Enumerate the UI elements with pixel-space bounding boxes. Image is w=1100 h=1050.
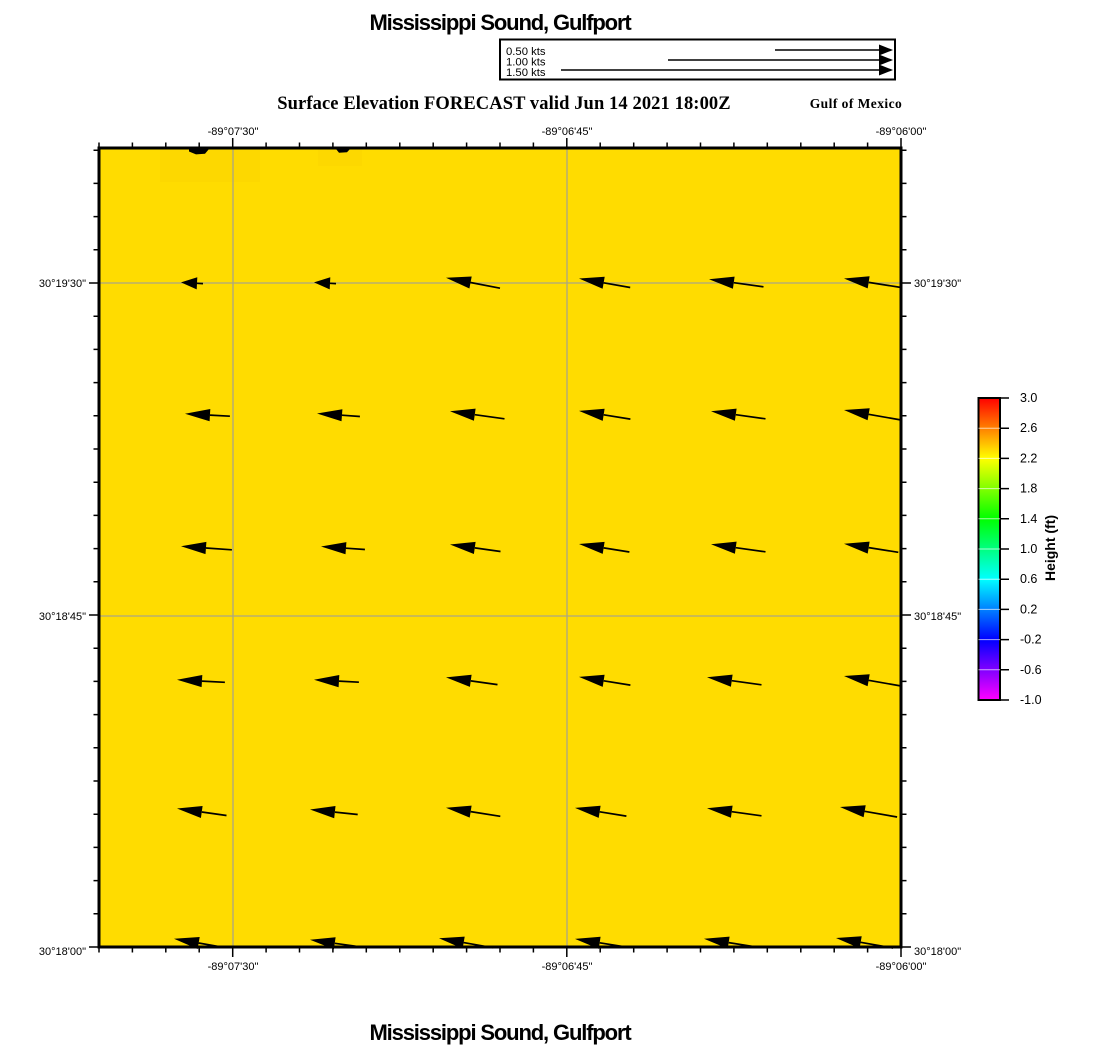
svg-text:-89°06'00": -89°06'00": [876, 126, 927, 138]
svg-text:30°18'45": 30°18'45": [39, 611, 86, 623]
svg-text:30°19'30": 30°19'30": [914, 278, 961, 290]
svg-text:-0.2: -0.2: [1020, 633, 1042, 647]
svg-text:Gulf of Mexico: Gulf of Mexico: [810, 96, 903, 111]
svg-text:-89°07'30": -89°07'30": [208, 961, 259, 973]
svg-text:1.0: 1.0: [1020, 542, 1037, 556]
svg-text:1.50 kts: 1.50 kts: [506, 67, 546, 79]
svg-text:30°18'00": 30°18'00": [39, 946, 86, 958]
svg-text:-89°07'30": -89°07'30": [208, 126, 259, 138]
svg-text:Height (ft): Height (ft): [1042, 515, 1058, 581]
svg-text:1.8: 1.8: [1020, 482, 1037, 496]
svg-text:30°19'30": 30°19'30": [39, 278, 86, 290]
svg-text:-1.0: -1.0: [1020, 693, 1042, 707]
svg-text:-89°06'45": -89°06'45": [542, 126, 593, 138]
svg-text:-0.6: -0.6: [1020, 663, 1042, 677]
svg-text:Mississippi Sound, Gulfport: Mississippi Sound, Gulfport: [369, 1020, 632, 1045]
svg-text:3.0: 3.0: [1020, 391, 1037, 405]
svg-text:2.6: 2.6: [1020, 421, 1037, 435]
svg-text:30°18'00": 30°18'00": [914, 946, 961, 958]
svg-text:0.6: 0.6: [1020, 572, 1037, 586]
svg-text:30°18'45": 30°18'45": [914, 611, 961, 623]
svg-text:1.4: 1.4: [1020, 512, 1037, 526]
svg-text:Surface Elevation FORECAST val: Surface Elevation FORECAST valid Jun 14 …: [277, 94, 730, 114]
svg-text:2.2: 2.2: [1020, 451, 1037, 465]
svg-text:Mississippi Sound, Gulfport: Mississippi Sound, Gulfport: [369, 10, 632, 35]
svg-text:-89°06'00": -89°06'00": [876, 961, 927, 973]
svg-text:0.2: 0.2: [1020, 602, 1037, 616]
svg-text:-89°06'45": -89°06'45": [542, 961, 593, 973]
